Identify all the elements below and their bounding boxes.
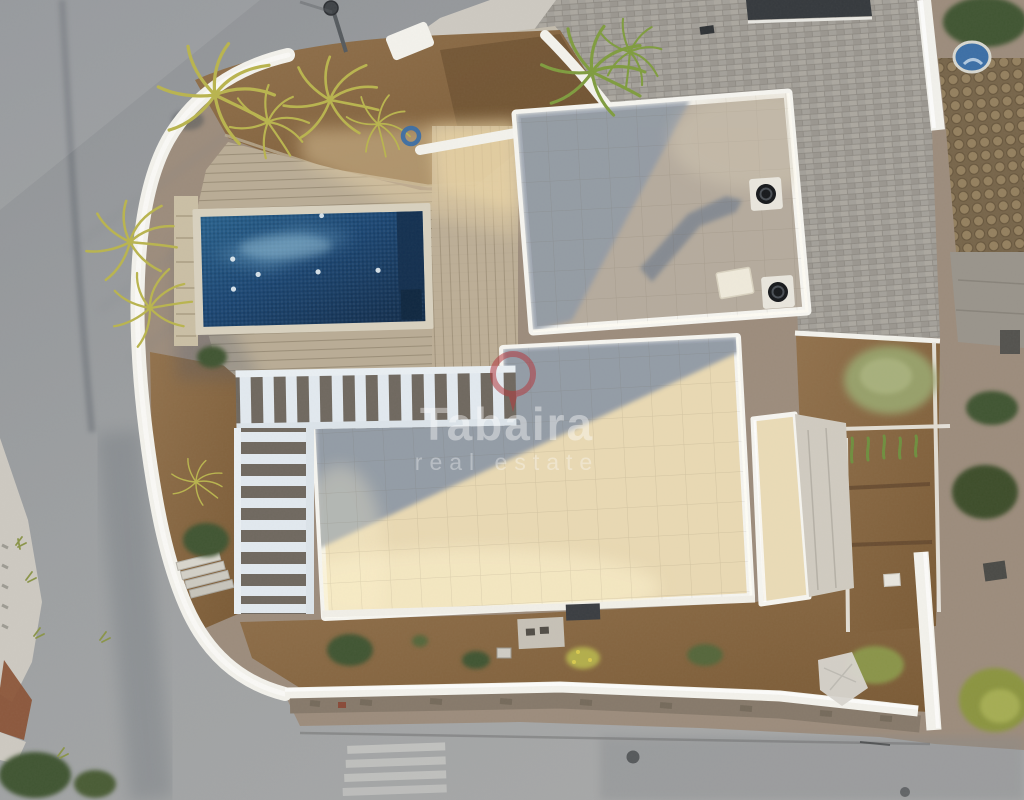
scene-canvas: Tabaira real estate [0, 0, 1024, 800]
watermark-brand-text: Tabaira [420, 398, 594, 450]
watermark-tagline-text: real estate [415, 449, 599, 475]
aerial-photo-villa: Tabaira real estate [0, 0, 1024, 800]
